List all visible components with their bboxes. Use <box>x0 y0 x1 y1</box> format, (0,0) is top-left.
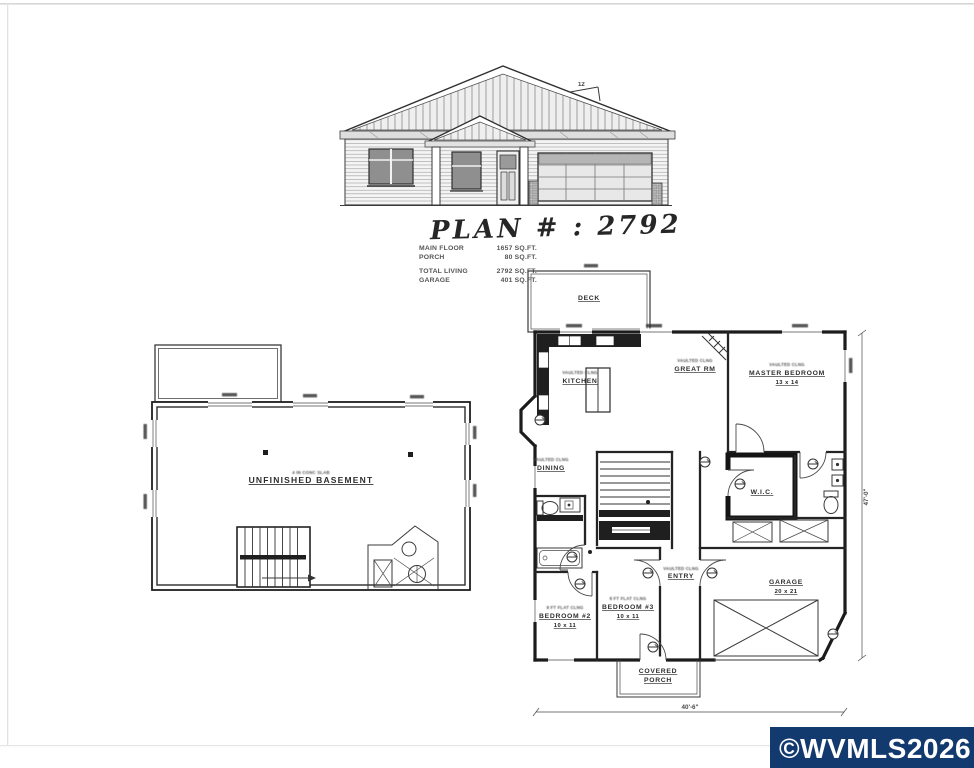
dining-label: DINING <box>537 465 565 472</box>
bed2-note: 8 FT FLAT CLNG <box>547 605 584 610</box>
garage-door-elevation <box>538 153 652 201</box>
garage-size: 20 x 21 <box>775 589 798 595</box>
closet-xbox <box>733 520 828 542</box>
porch-post-right <box>520 147 528 205</box>
dimension-right: 47'-0" <box>858 330 870 661</box>
door-symbol <box>735 479 745 489</box>
door-symbol <box>828 629 838 639</box>
bed3-label: BEDROOM #3 <box>602 604 654 611</box>
deck-label: DECK <box>578 295 600 302</box>
basement-annex-outer <box>155 345 281 402</box>
gable-battens <box>352 74 662 130</box>
door-symbol <box>648 642 658 652</box>
porch-label-line1: COVERED <box>639 668 678 675</box>
main-stairs <box>597 452 672 548</box>
scan-edge-top <box>0 3 974 5</box>
toilet <box>824 497 838 514</box>
pitch-label: 12 <box>578 82 585 88</box>
main-floor-plan: DECK <box>521 264 870 716</box>
door-symbol <box>575 579 585 589</box>
dining-note: VAULTED CLNG <box>533 457 569 462</box>
door-symbol <box>535 415 545 425</box>
door-symbol <box>643 568 653 578</box>
door-symbol <box>700 457 710 467</box>
refrigerator <box>539 352 549 368</box>
basement-plan: 4 IN CONC SLAB UNFINISHED BASEMENT <box>144 345 477 590</box>
great-room-note: VAULTED CLNG <box>677 358 713 363</box>
mls-watermark: ©WVMLS2026 <box>770 727 974 768</box>
dimension-bottom: 40'-6" <box>533 704 847 716</box>
main-dim-marks <box>566 264 852 373</box>
post-symbol <box>408 452 413 457</box>
post-symbol <box>263 450 268 455</box>
basement-annex-inner <box>159 349 278 399</box>
door-symbol <box>808 459 818 469</box>
scan-edge-bottom <box>0 745 772 746</box>
porch-post-left <box>432 147 440 205</box>
great-room-label: GREAT RM <box>674 366 715 373</box>
door-symbol <box>707 568 717 578</box>
basement-room-label: UNFINISHED BASEMENT <box>249 475 374 485</box>
stone-pillar-left <box>529 181 538 205</box>
master-bath-fixtures <box>795 455 843 518</box>
corner-fireplace <box>702 333 729 360</box>
window-porch <box>450 152 483 191</box>
dim-bottom-text: 40'-6" <box>681 704 698 711</box>
stat-label-3: GARAGE <box>419 277 450 284</box>
stat-label-1: PORCH <box>419 254 445 261</box>
stat-value-3: 401 SQ.FT. <box>501 277 537 284</box>
main-bathroom <box>537 496 589 570</box>
stat-value-0: 1657 SQ.FT. <box>497 245 537 252</box>
stats-block: MAIN FLOOR 1657 SQ.FT. PORCH 80 SQ.FT. T… <box>419 245 537 284</box>
window-left <box>367 149 415 186</box>
porch-label-line2: PORCH <box>644 677 672 684</box>
stat-label-0: MAIN FLOOR <box>419 245 464 252</box>
master-size: 13 x 14 <box>776 380 799 386</box>
house-elevation: 12 <box>340 66 675 206</box>
watermark-text: ©WVMLS2026 <box>779 733 971 764</box>
door-symbol <box>567 552 577 562</box>
basement-stairs <box>237 527 316 587</box>
wic-label: W.I.C. <box>751 489 774 496</box>
garage-door-x <box>714 600 818 656</box>
bed2-label: BEDROOM #2 <box>539 613 591 620</box>
entry-note: VAULTED CLNG <box>663 566 699 571</box>
master-note: VAULTED CLNG <box>769 362 805 367</box>
bed3-size: 10 x 11 <box>617 614 640 620</box>
stat-value-1: 80 SQ.FT. <box>505 254 537 261</box>
scan-edge-left <box>7 3 8 745</box>
garage-label: GARAGE <box>769 579 803 586</box>
bed2-size: 10 x 11 <box>554 623 577 629</box>
plan-drawing-canvas: 12 PLAN # : 2792 MAIN FLOOR 1657 SQ.FT. … <box>0 0 974 768</box>
toilet <box>542 502 558 515</box>
entry-label: ENTRY <box>668 573 694 580</box>
porch-fascia <box>425 141 535 147</box>
plan-number-title: PLAN # : 2792 <box>429 210 682 247</box>
bed3-note: 8 FT FLAT CLNG <box>610 596 647 601</box>
stat-label-2: TOTAL LIVING <box>419 268 468 275</box>
kitchen-note: VAULTED CLNG <box>562 370 598 375</box>
basement-wall-outer <box>152 402 470 590</box>
entry-door-elevation <box>497 151 519 205</box>
master-label: MASTER BEDROOM <box>749 370 825 377</box>
stone-pillar-right <box>652 183 662 205</box>
kitchen-label: KITCHEN <box>562 378 597 385</box>
dim-right-text: 47'-0" <box>863 488 870 505</box>
range <box>596 336 614 346</box>
scanned-plan-sheet: 12 PLAN # : 2792 MAIN FLOOR 1657 SQ.FT. … <box>0 0 974 768</box>
